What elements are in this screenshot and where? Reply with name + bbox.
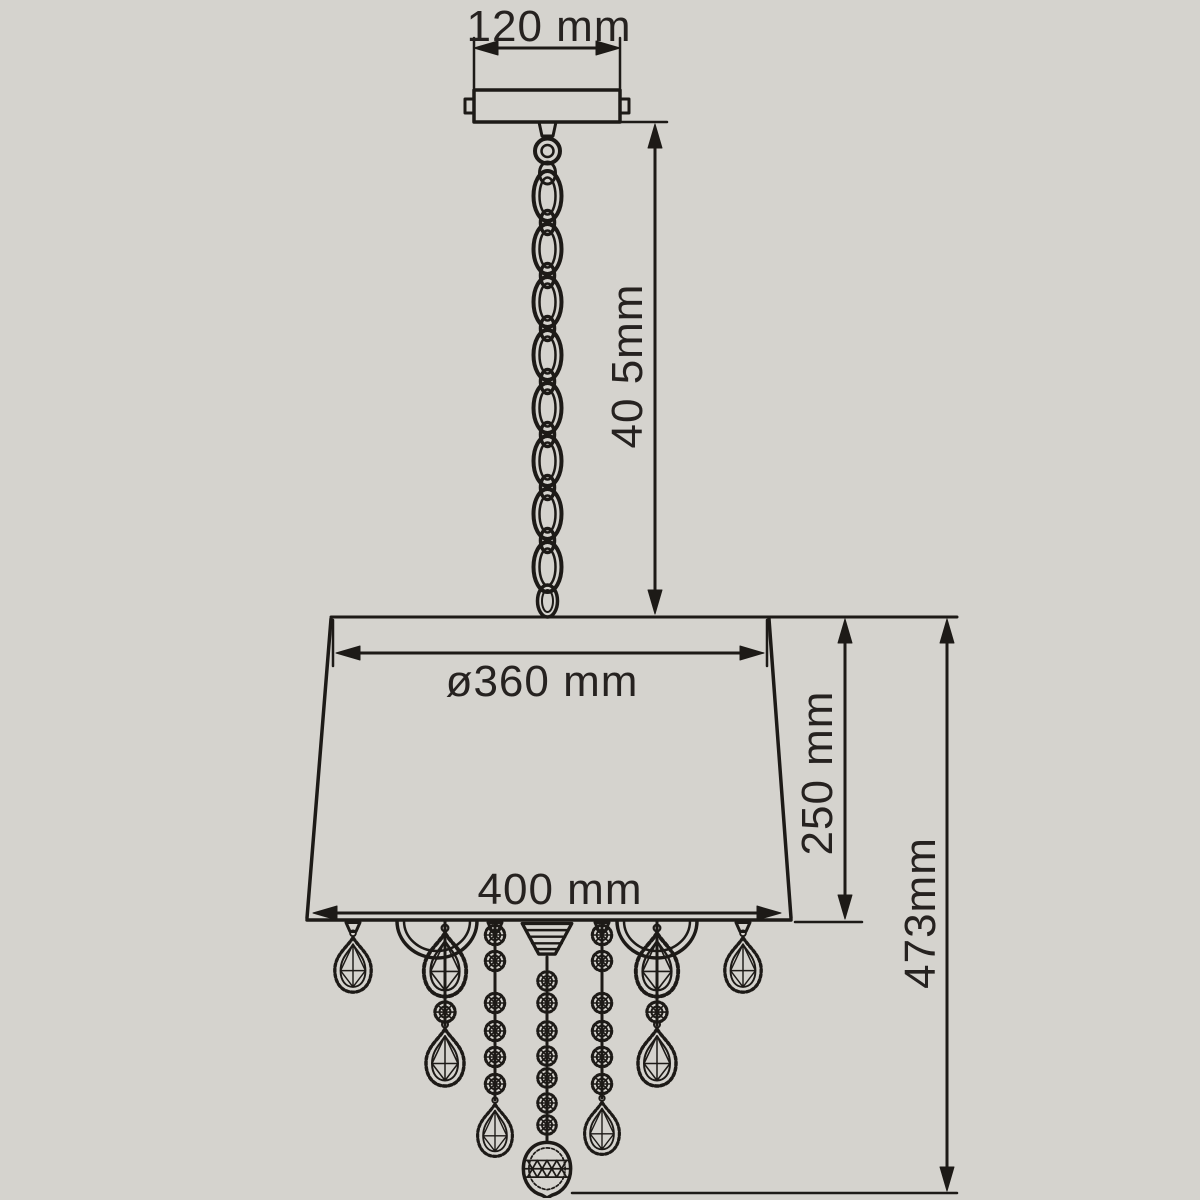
arrowhead-down	[838, 895, 852, 919]
bead-crystal	[592, 993, 611, 1012]
dimension-canopy-width	[474, 38, 620, 88]
arrowhead-up	[648, 124, 662, 148]
crystal-strand	[335, 923, 371, 993]
bead-crystal	[538, 1094, 557, 1113]
crystal-strand	[725, 923, 761, 993]
bead-crystal	[485, 951, 504, 970]
arrowhead-right	[596, 41, 620, 55]
bead-crystal	[647, 1002, 667, 1022]
arrowhead-down	[648, 590, 662, 614]
bead-crystal	[485, 993, 504, 1012]
bead-crystal	[538, 1069, 557, 1088]
arrowhead-left	[313, 906, 337, 920]
bead-crystal	[485, 1021, 504, 1040]
dimension-shade-height	[795, 619, 862, 922]
bead-crystal	[485, 925, 504, 944]
bead-crystal	[538, 1022, 557, 1041]
teardrop-crystal	[478, 1097, 513, 1156]
left-arm-arc-inner	[404, 921, 470, 951]
chandelier-dimension-diagram: 120 mm 40 5mm ø360 mm 250 mm 400 mm 473m…	[0, 0, 1200, 1200]
teardrop-crystal	[426, 1022, 464, 1087]
bead-crystal	[538, 972, 557, 991]
crystal-trim	[335, 921, 761, 1198]
bead-crystal	[485, 1047, 504, 1066]
bead-crystal	[538, 1116, 557, 1135]
bead-crystal	[592, 1074, 611, 1093]
crystal-strand-center	[522, 923, 572, 1198]
bead-crystal	[592, 925, 611, 944]
bead-crystal	[592, 951, 611, 970]
teardrop-crystal	[636, 925, 678, 997]
teardrop-crystal	[725, 930, 761, 992]
lampshade	[307, 617, 957, 920]
line-drawing	[0, 0, 1200, 1200]
crystal-strand	[424, 921, 466, 1086]
arrowhead-right	[740, 646, 764, 660]
arrowhead-right	[757, 906, 781, 920]
bead-crystal	[592, 1047, 611, 1066]
teardrop-crystal	[335, 930, 371, 992]
bead-crystal	[485, 1074, 504, 1093]
ceiling-canopy	[465, 90, 667, 122]
crystal-strand	[636, 921, 678, 1086]
crystal-strand	[585, 921, 620, 1154]
bead-crystal	[538, 1047, 557, 1066]
chain-link	[534, 171, 562, 617]
canopy-left-tab	[465, 99, 474, 113]
dimension-shade-bottom-diameter	[313, 906, 781, 920]
canopy-right-tab	[620, 99, 629, 113]
chain	[534, 171, 562, 617]
dimension-overall-height	[572, 619, 957, 1193]
bead-crystal	[538, 994, 557, 1013]
teardrop-crystal	[424, 925, 466, 997]
bead-crystal	[435, 1002, 455, 1022]
arrowhead-up	[838, 619, 852, 643]
arrowhead-left	[336, 646, 360, 660]
arrowhead-down	[940, 1167, 954, 1191]
crystal-strand	[478, 921, 513, 1156]
arrowhead-up	[940, 619, 954, 643]
arrowhead-left	[474, 41, 498, 55]
teardrop-crystal	[585, 1095, 620, 1154]
dimension-shade-top-diameter	[336, 646, 764, 660]
dimension-chain-length	[648, 124, 662, 614]
teardrop-crystal	[638, 1022, 676, 1087]
bead-crystal	[592, 1021, 611, 1040]
center-finial	[522, 923, 572, 954]
ball-crystal	[523, 1135, 570, 1198]
